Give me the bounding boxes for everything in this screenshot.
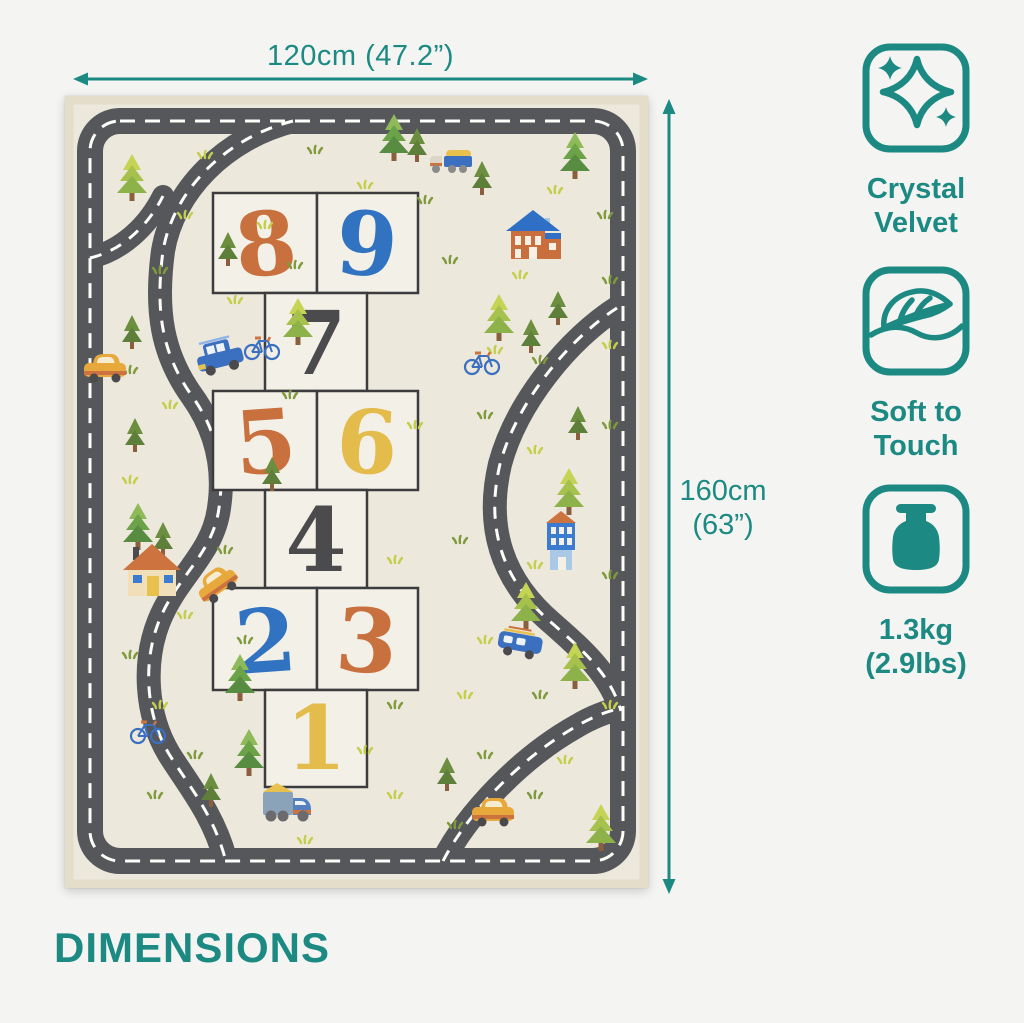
feature-label-line1: Crystal — [831, 172, 1001, 206]
arrowhead-down-icon — [663, 879, 676, 894]
hopscotch-number: 4 — [285, 488, 346, 592]
hopscotch-number: 1 — [285, 686, 346, 790]
section-title: DIMENSIONS — [54, 924, 330, 972]
sparkle-icon — [861, 42, 971, 154]
arrowhead-right-icon — [633, 73, 648, 86]
feature-label-line1: Soft to — [831, 395, 1001, 429]
feature-label: 1.3kg (2.9lbs) — [831, 613, 1001, 681]
feather-icon — [861, 265, 971, 377]
feature-label-line2: Velvet — [831, 206, 1001, 240]
width-dimension-label: 120cm (47.2”) — [73, 40, 648, 73]
hopscotch-number: 8 — [231, 189, 301, 298]
feature-label: Soft to Touch — [831, 395, 1001, 463]
height-dimension-line2: (63”) — [676, 508, 770, 542]
weight-icon — [861, 483, 971, 595]
width-dimension-arrow — [73, 71, 648, 87]
feature-weight: 1.3kg (2.9lbs) — [831, 483, 1001, 681]
height-dimension-line1: 160cm — [676, 474, 770, 508]
product-dimensions-infographic: 120cm (47.2”) 160cm (63”) — [0, 0, 1024, 1023]
height-dimension-arrow — [661, 99, 677, 894]
feature-label-line2: (2.9lbs) — [831, 647, 1001, 681]
play-mat-image: 8 9 7 5 6 4 2 3 1 — [65, 96, 648, 888]
arrowhead-up-icon — [663, 99, 676, 114]
blue-building — [546, 511, 576, 570]
feature-label-line2: Touch — [831, 429, 1001, 463]
feature-label: Crystal Velvet — [831, 172, 1001, 240]
hopscotch-number: 3 — [333, 587, 401, 695]
arrowhead-left-icon — [73, 73, 88, 86]
feature-soft-to-touch: Soft to Touch — [831, 265, 1001, 463]
hopscotch-number: 6 — [334, 388, 401, 495]
feature-crystal-velvet: Crystal Velvet — [831, 42, 1001, 240]
feature-label-line1: 1.3kg — [831, 613, 1001, 647]
height-dimension-label: 160cm (63”) — [676, 474, 770, 542]
hopscotch-number: 9 — [333, 190, 401, 298]
